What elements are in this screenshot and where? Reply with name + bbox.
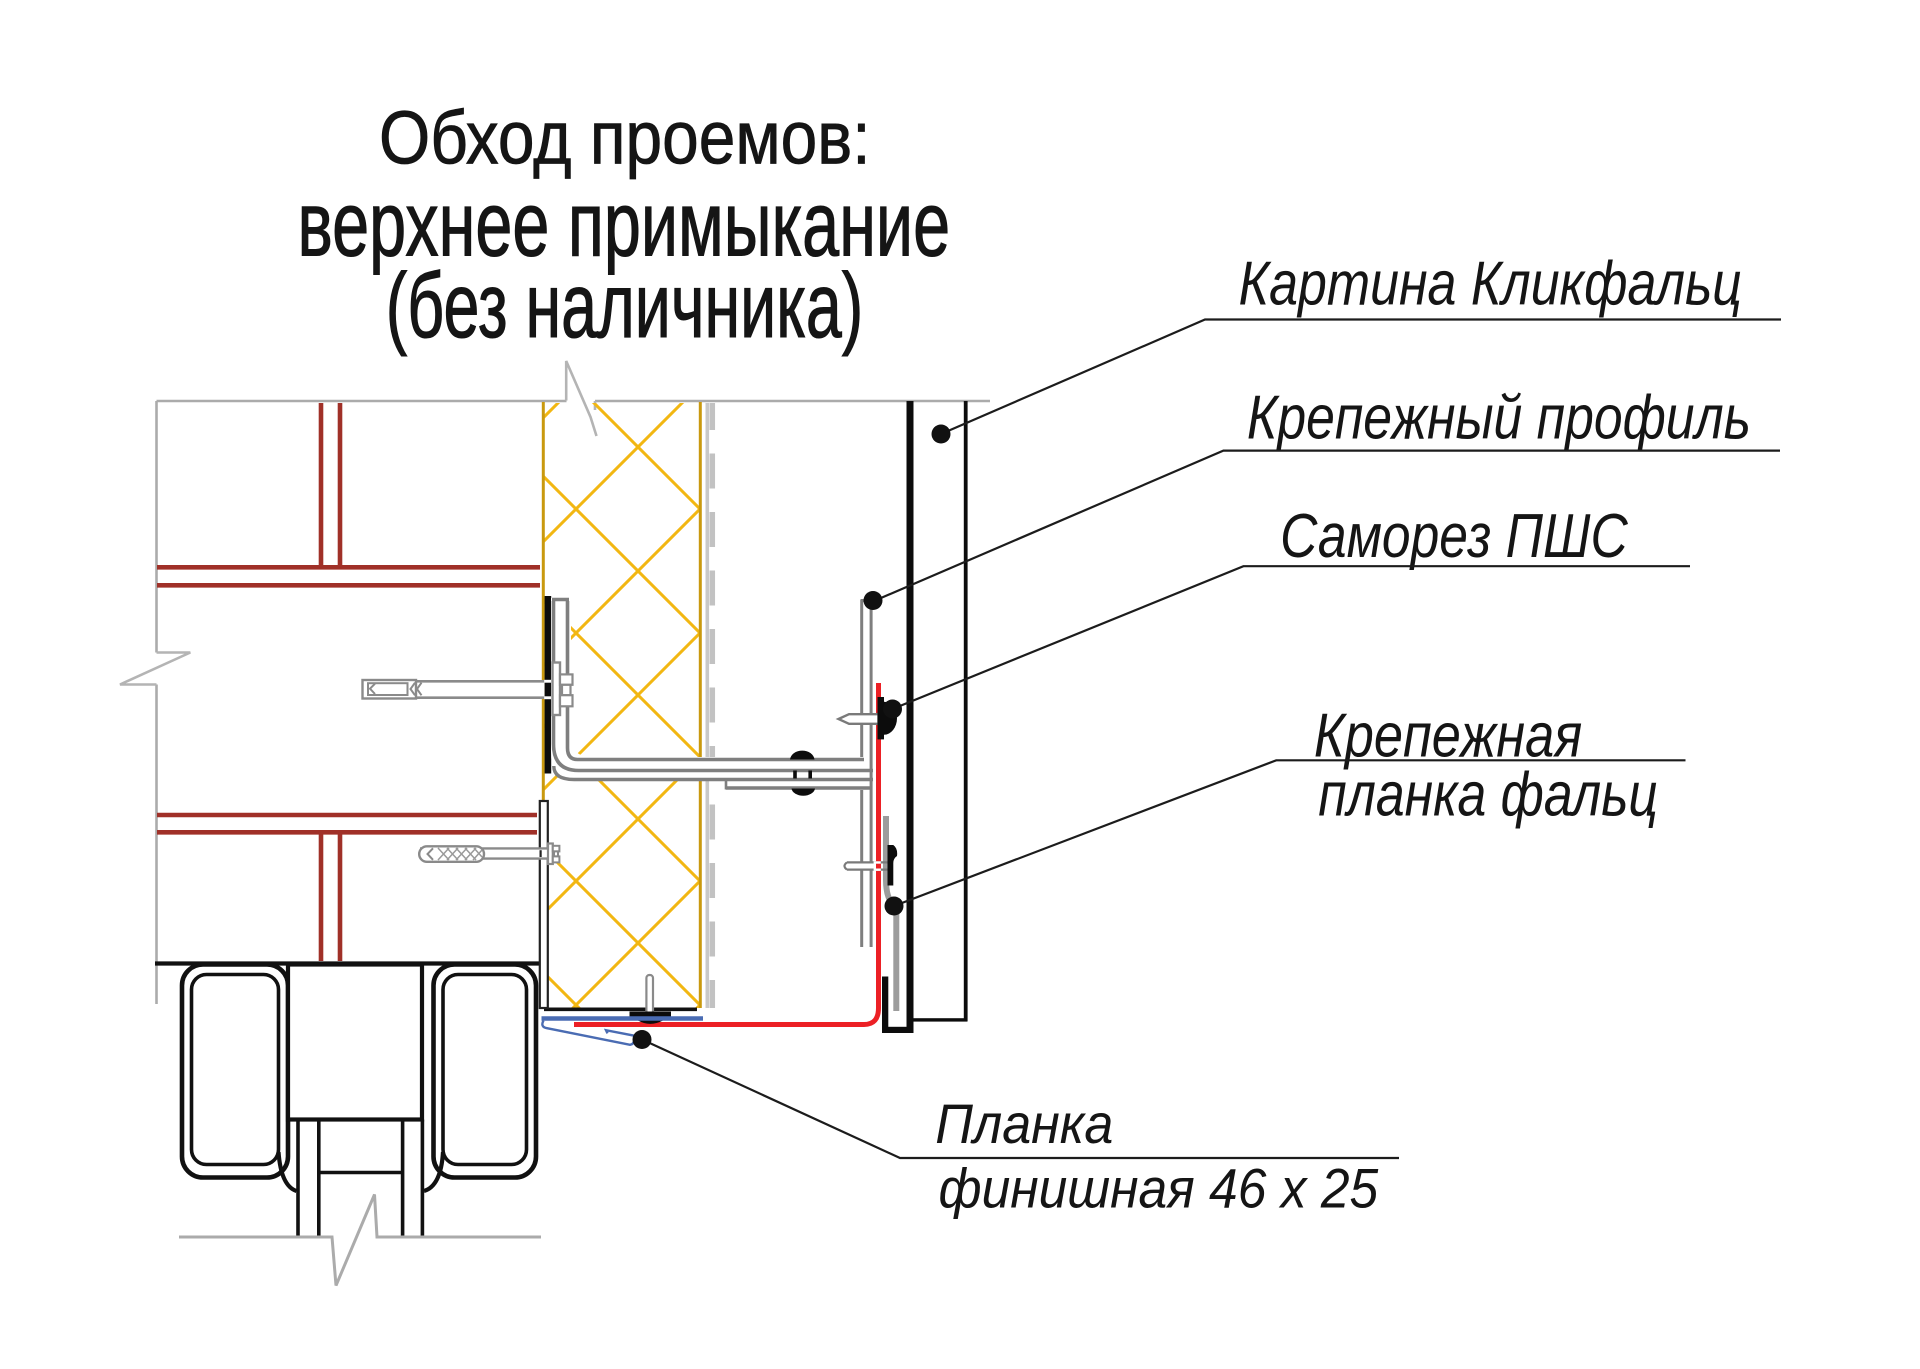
svg-text:Саморез ПШС: Саморез ПШС [1280, 502, 1629, 571]
svg-text:(без наличника): (без наличника) [386, 255, 864, 357]
svg-text:финишная 46 х 25: финишная 46 х 25 [939, 1156, 1379, 1219]
svg-text:Крепежный профиль: Крепежный профиль [1247, 384, 1751, 453]
svg-text:планка фальц: планка фальц [1318, 761, 1658, 830]
svg-text:Обход проемов:: Обход проемов: [379, 96, 871, 180]
svg-text:Картина Кликфальц: Картина Кликфальц [1239, 250, 1743, 319]
svg-text:Планка: Планка [935, 1092, 1113, 1155]
